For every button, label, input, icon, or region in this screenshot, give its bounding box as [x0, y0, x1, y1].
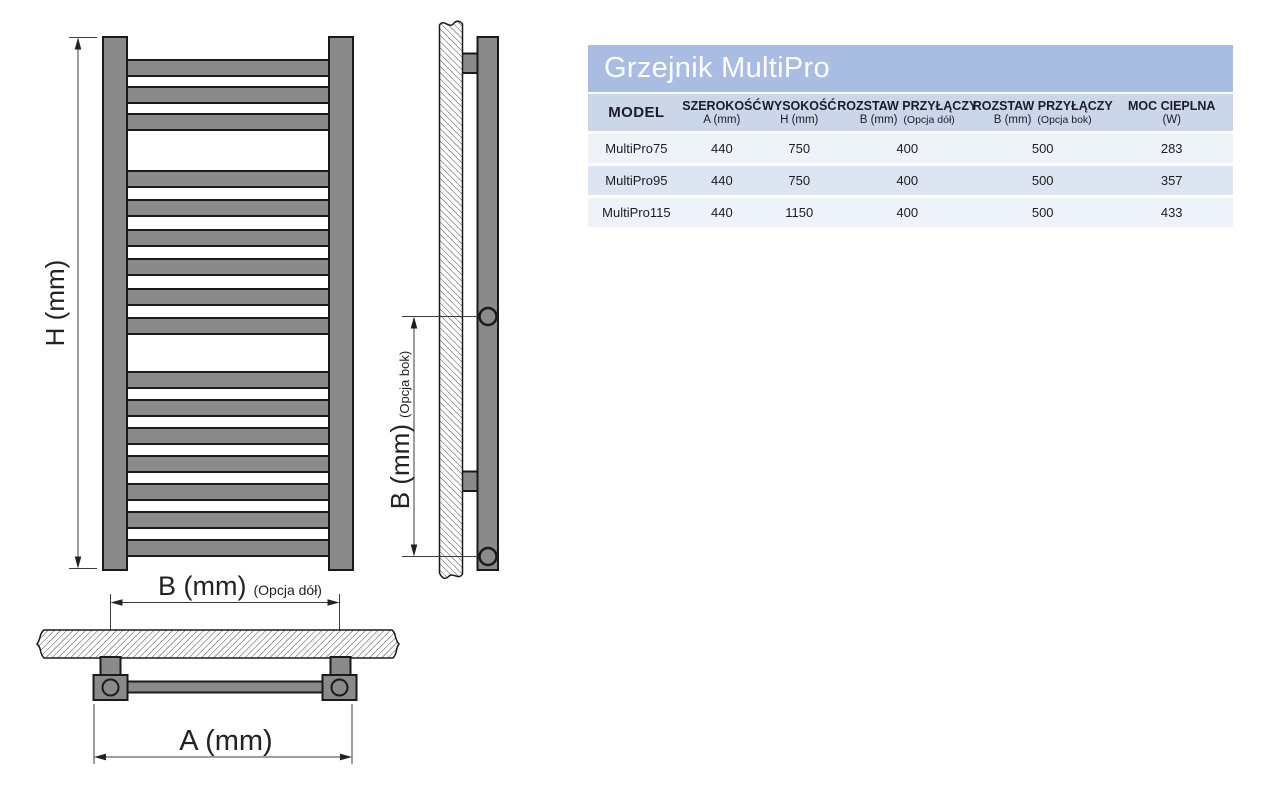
unit-option: (Opcja bok)	[1037, 114, 1091, 126]
radiator-rung	[125, 400, 330, 416]
cell-szerokosc: 440	[685, 173, 759, 188]
radiator-rung	[125, 230, 330, 246]
radiator-rung	[125, 289, 330, 305]
column-header-label: WYSOKOŚĆ	[762, 99, 836, 113]
cell-rozstaw-dol: 400	[840, 141, 975, 156]
column-header-szerokosc: SZEROKOŚĆ A (mm)	[685, 99, 759, 126]
table-row-multipro115: MultiPro115 440 1150 400 500 433	[588, 198, 1233, 227]
unit-option: (Opcja dół)	[903, 114, 954, 126]
h-dimension	[69, 38, 97, 569]
bottom-section-view	[37, 630, 399, 700]
column-header-model: MODEL	[588, 104, 685, 121]
cell-wysokosc: 1150	[759, 205, 840, 220]
radiator-rung	[125, 114, 330, 130]
column-header-moc: MOC CIEPLNA (W)	[1110, 99, 1233, 126]
radiator-front-view	[103, 37, 353, 570]
column-header-unit: H (mm)	[780, 114, 818, 126]
b-side-arrow-down	[411, 545, 418, 557]
column-header-rozstaw-dol: ROZSTAW PRZYŁĄCZY B (mm)(Opcja dół)	[840, 99, 975, 126]
column-header-rozstaw-bok: ROZSTAW PRZYŁĄCZY B (mm)(Opcja bok)	[975, 99, 1110, 126]
b-side-dimension-label: B (mm)(Opcja bok)	[385, 351, 415, 509]
a-dimension-label: A (mm)	[179, 725, 272, 757]
spec-table: Grzejnik MultiPro MODEL SZEROKOŚĆ A (mm)…	[588, 45, 1233, 227]
column-header-unit: B (mm)(Opcja dół)	[860, 114, 955, 126]
radiator-rung	[125, 60, 330, 76]
cell-wysokosc: 750	[759, 173, 840, 188]
radiator-side-view	[402, 21, 498, 578]
radiator-rung	[125, 456, 330, 472]
b-bottom-arrow-right	[328, 599, 340, 606]
table-title: Grzejnik MultiPro	[588, 45, 1233, 92]
b-side-arrow-up	[411, 317, 418, 329]
mounting-bracket-top	[461, 54, 479, 74]
radiator-rung	[125, 200, 330, 216]
b-bottom-dimension-label: B (mm)(Opcja dół)	[158, 571, 322, 601]
valve-circle-left	[103, 680, 119, 696]
connecting-pipe	[128, 682, 323, 693]
column-header-label: MODEL	[608, 104, 664, 121]
unit-text: B (mm)	[994, 114, 1032, 126]
cell-moc: 433	[1110, 205, 1233, 220]
h-dimension-label: H (mm)	[40, 260, 70, 347]
radiator-rung	[125, 318, 330, 334]
column-header-unit: B (mm)(Opcja bok)	[994, 114, 1092, 126]
cell-wysokosc: 750	[759, 141, 840, 156]
cell-szerokosc: 440	[685, 141, 759, 156]
column-header-label: ROZSTAW PRZYŁĄCZY	[837, 99, 977, 113]
cell-rozstaw-bok: 500	[975, 173, 1110, 188]
column-header-wysokosc: WYSOKOŚĆ H (mm)	[759, 99, 840, 126]
table-row-multipro75: MultiPro75 440 750 400 500 283	[588, 134, 1233, 163]
b-bottom-arrow-left	[111, 599, 123, 606]
a-arrow-left	[94, 754, 106, 761]
h-arrow-down	[75, 557, 82, 569]
radiator-rail-right	[329, 37, 353, 570]
radiator-rung	[125, 484, 330, 500]
technical-drawing: H (mm) B (mm)(Opcja dół) A (mm)	[0, 0, 580, 804]
cell-rozstaw-bok: 500	[975, 141, 1110, 156]
cell-moc: 283	[1110, 141, 1233, 156]
mounting-bracket-bottom	[461, 472, 479, 492]
h-arrow-up	[75, 38, 82, 50]
a-arrow-right	[340, 754, 352, 761]
column-header-unit: A (mm)	[703, 114, 740, 126]
radiator-rung	[125, 171, 330, 187]
valve-stub-right	[331, 657, 351, 675]
cell-moc: 357	[1110, 173, 1233, 188]
radiator-rung	[125, 372, 330, 388]
radiator-rung	[125, 512, 330, 528]
wall-bottom	[37, 630, 399, 658]
cell-model: MultiPro115	[588, 205, 685, 220]
radiator-rung	[125, 259, 330, 275]
column-header-label: SZEROKOŚĆ	[682, 99, 761, 113]
valve-circle-right	[332, 680, 348, 696]
column-header-unit: (W)	[1162, 114, 1181, 126]
radiator-rung	[125, 540, 330, 556]
radiator-rung	[125, 428, 330, 444]
connection-circle-bottom	[480, 548, 497, 565]
column-header-label: MOC CIEPLNA	[1128, 99, 1216, 113]
connection-circle-top	[480, 308, 497, 325]
radiator-rail-left	[103, 37, 127, 570]
column-header-label: ROZSTAW PRZYŁĄCZY	[973, 99, 1113, 113]
cell-szerokosc: 440	[685, 205, 759, 220]
radiator-profile-bar	[478, 37, 499, 570]
cell-model: MultiPro95	[588, 173, 685, 188]
cell-rozstaw-bok: 500	[975, 205, 1110, 220]
valve-stub-left	[101, 657, 121, 675]
wall-side	[440, 21, 463, 578]
cell-rozstaw-dol: 400	[840, 205, 975, 220]
radiator-rung	[125, 87, 330, 103]
cell-model: MultiPro75	[588, 141, 685, 156]
cell-rozstaw-dol: 400	[840, 173, 975, 188]
unit-text: B (mm)	[860, 114, 898, 126]
table-row-multipro95: MultiPro95 440 750 400 500 357	[588, 166, 1233, 195]
table-header-row: MODEL SZEROKOŚĆ A (mm) WYSOKOŚĆ H (mm) R…	[588, 94, 1233, 131]
